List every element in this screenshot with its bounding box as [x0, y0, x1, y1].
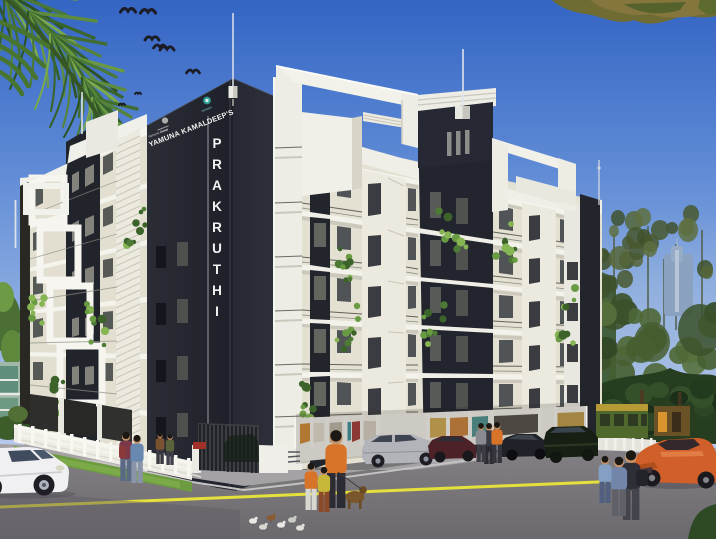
svg-text:I: I — [215, 304, 219, 319]
svg-text:R: R — [212, 220, 222, 235]
svg-text:K: K — [212, 199, 222, 214]
svg-text:U: U — [212, 241, 222, 256]
svg-text:A: A — [212, 178, 222, 193]
svg-text:P: P — [212, 136, 221, 151]
svg-text:H: H — [212, 283, 222, 298]
svg-text:R: R — [212, 157, 222, 172]
svg-text:T: T — [213, 262, 222, 277]
